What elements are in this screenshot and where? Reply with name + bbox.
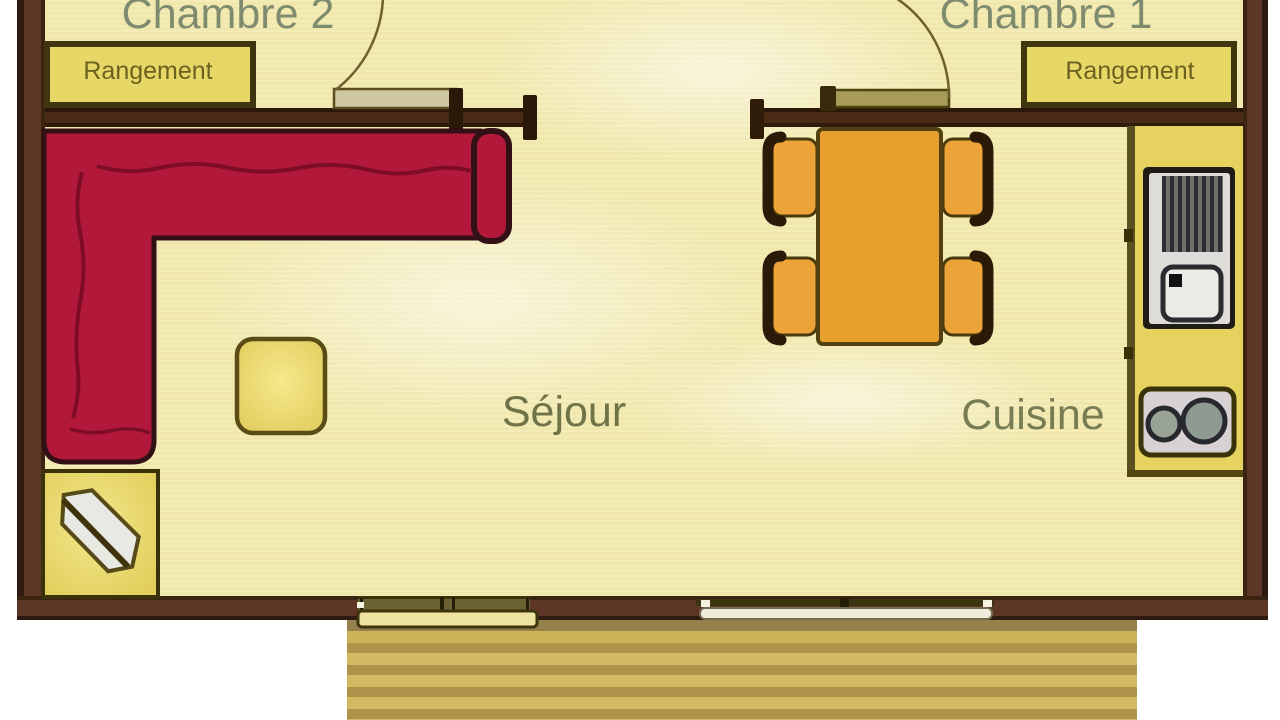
svg-text:Séjour: Séjour	[502, 388, 626, 436]
svg-text:Rangement: Rangement	[1065, 57, 1194, 85]
svg-text:Chambre 1: Chambre 1	[940, 0, 1153, 38]
svg-text:Cuisine: Cuisine	[961, 391, 1104, 439]
svg-text:Rangement: Rangement	[83, 57, 212, 85]
svg-text:Chambre 2: Chambre 2	[122, 0, 335, 38]
